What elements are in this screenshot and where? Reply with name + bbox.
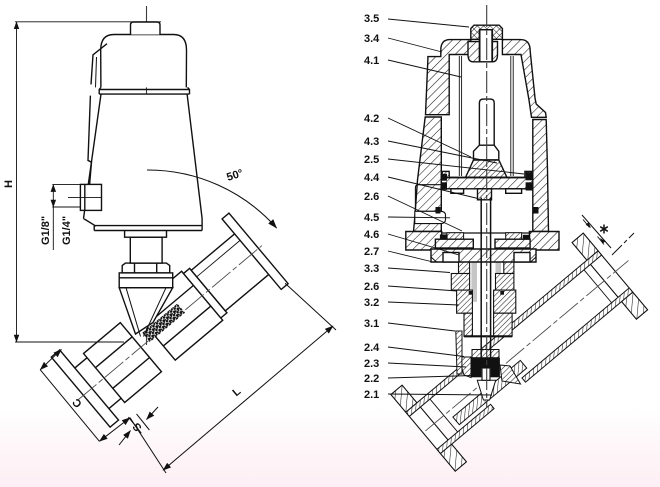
svg-text:2.6: 2.6 xyxy=(364,281,379,293)
svg-text:4.3: 4.3 xyxy=(364,136,379,148)
svg-text:4.5: 4.5 xyxy=(364,212,379,224)
svg-text:3.2: 3.2 xyxy=(364,297,379,309)
svg-text:4.6: 4.6 xyxy=(364,229,379,241)
svg-text:4.2: 4.2 xyxy=(364,113,379,125)
svg-text:G1/8": G1/8" xyxy=(40,216,52,245)
svg-text:2.5: 2.5 xyxy=(364,154,379,166)
svg-text:2.1: 2.1 xyxy=(364,389,379,401)
svg-text:2.3: 2.3 xyxy=(364,358,379,370)
svg-text:2.6: 2.6 xyxy=(364,191,379,203)
svg-text:2.7: 2.7 xyxy=(364,246,379,258)
svg-text:2.4: 2.4 xyxy=(364,342,380,354)
svg-text:4.4: 4.4 xyxy=(364,172,380,184)
svg-text:3.4: 3.4 xyxy=(364,33,380,45)
svg-text:2.2: 2.2 xyxy=(364,373,379,385)
svg-text:G1/4": G1/4" xyxy=(61,216,73,245)
svg-text:3.3: 3.3 xyxy=(364,263,379,275)
svg-text:4.1: 4.1 xyxy=(364,55,379,67)
svg-text:3.1: 3.1 xyxy=(364,318,379,330)
svg-text:H: H xyxy=(3,180,15,188)
svg-text:3.5: 3.5 xyxy=(364,13,379,25)
